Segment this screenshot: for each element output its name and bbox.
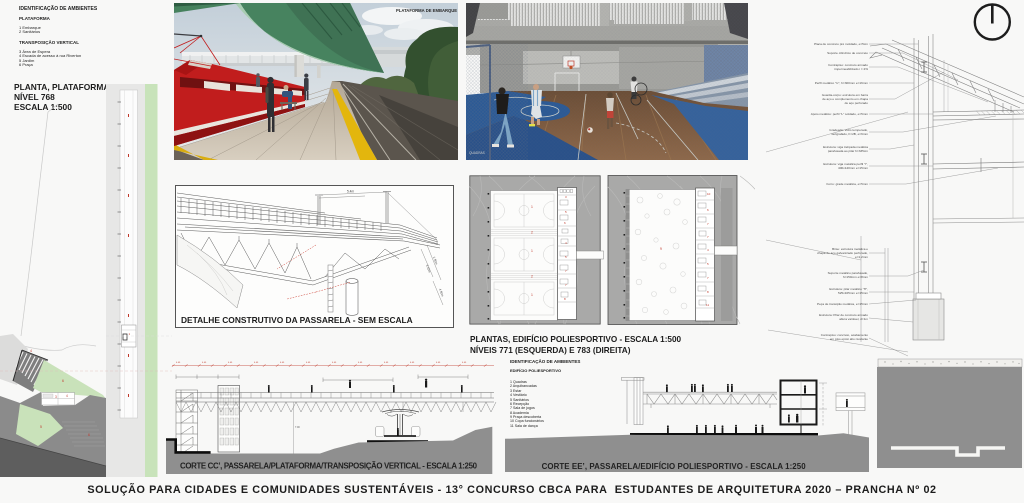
svg-text:1: 1 [531, 249, 533, 253]
svg-text:7.00: 7.00 [295, 426, 300, 429]
svg-text:1: 1 [531, 293, 533, 297]
svg-text:de aço perfurado: de aço perfurado [845, 101, 869, 105]
svg-text:5.4m: 5.4m [347, 190, 354, 194]
svg-text:Placa de concreto pré moldado,: Placa de concreto pré moldado, e=5cm [814, 42, 868, 46]
svg-text:Perfil metálico "U", h=300mm e: Perfil metálico "U", h=300mm e=16mm [815, 81, 869, 85]
svg-text:9: 9 [660, 247, 662, 251]
svg-text:QUADRAS: QUADRAS [469, 151, 485, 155]
svg-text:4.45: 4.45 [436, 362, 441, 364]
svg-text:4.45: 4.45 [462, 362, 467, 364]
svg-text:CORTE CC’, PASSARELA/PLATAFORM: CORTE CC’, PASSARELA/PLATAFORMA/TRANSPOS… [180, 462, 478, 471]
svg-text:Suporte cilíndrico de concreto: Suporte cilíndrico de concreto [827, 51, 868, 55]
svg-text:altura variável, d=1m: altura variável, d=1m [839, 317, 868, 321]
svg-text:4.45: 4.45 [332, 362, 337, 364]
svg-text:Peça de transição metálica, e=: Peça de transição metálica, e=15mm [817, 302, 868, 306]
svg-text:10: 10 [707, 192, 711, 196]
svg-text:impermeabilizado i = 2%: impermeabilizado i = 2% [834, 67, 868, 71]
svg-text:4.45: 4.45 [384, 362, 389, 364]
svg-text:4.45: 4.45 [306, 362, 311, 364]
svg-text:5: 5 [40, 425, 42, 429]
svg-text:2: 2 [531, 275, 533, 279]
svg-text:4.45: 4.45 [358, 362, 363, 364]
svg-text:parafusada ao pilar h=335cm: parafusada ao pilar h=335cm [828, 149, 869, 153]
svg-text:4.45: 4.45 [254, 362, 259, 364]
svg-text:4: 4 [30, 349, 32, 353]
svg-text:525x165mm e=15mm: 525x165mm e=15mm [838, 291, 868, 295]
svg-text:e=1,2mm: e=1,2mm [855, 255, 868, 259]
svg-text:CORTE EE’, PASSARELA/EDIFÍCIO: CORTE EE’, PASSARELA/EDIFÍCIO POLIESPORT… [542, 462, 807, 471]
svg-text:400x140mm e=15mm: 400x140mm e=15mm [838, 166, 868, 170]
svg-text:h=150mm e=8mm: h=150mm e=8mm [843, 275, 869, 279]
svg-text:Forro: grade metálica, e=5mm: Forro: grade metálica, e=5mm [826, 182, 868, 186]
svg-text:4.45: 4.45 [176, 362, 181, 364]
svg-text:4: 4 [66, 394, 68, 398]
svg-text:2: 2 [531, 231, 533, 235]
svg-text:DETALHE CONSTRUTIVO DA PASSARE: DETALHE CONSTRUTIVO DA PASSARELA - SEM E… [181, 315, 413, 325]
svg-text:4.45: 4.45 [410, 362, 415, 364]
svg-text:PLATAFORMA DE EMBARQUE: PLATAFORMA DE EMBARQUE [396, 8, 457, 13]
svg-text:Apoio metálico: perfil "L" sol: Apoio metálico: perfil "L" soldado, e=5m… [811, 112, 869, 116]
svg-text:6: 6 [62, 379, 64, 383]
svg-text:11: 11 [706, 303, 709, 307]
svg-text:1: 1 [531, 205, 533, 209]
svg-text:serigrafado, h=2B, e=6mm: serigrafado, h=2B, e=6mm [831, 132, 868, 136]
svg-text:4.45: 4.45 [280, 362, 285, 364]
svg-text:4.45: 4.45 [202, 362, 207, 364]
svg-text:3: 3 [55, 395, 57, 399]
svg-text:4.45: 4.45 [228, 362, 233, 364]
svg-text:6: 6 [88, 433, 90, 437]
svg-text:em piso epóxi alto nivelante: em piso epóxi alto nivelante [830, 337, 868, 341]
